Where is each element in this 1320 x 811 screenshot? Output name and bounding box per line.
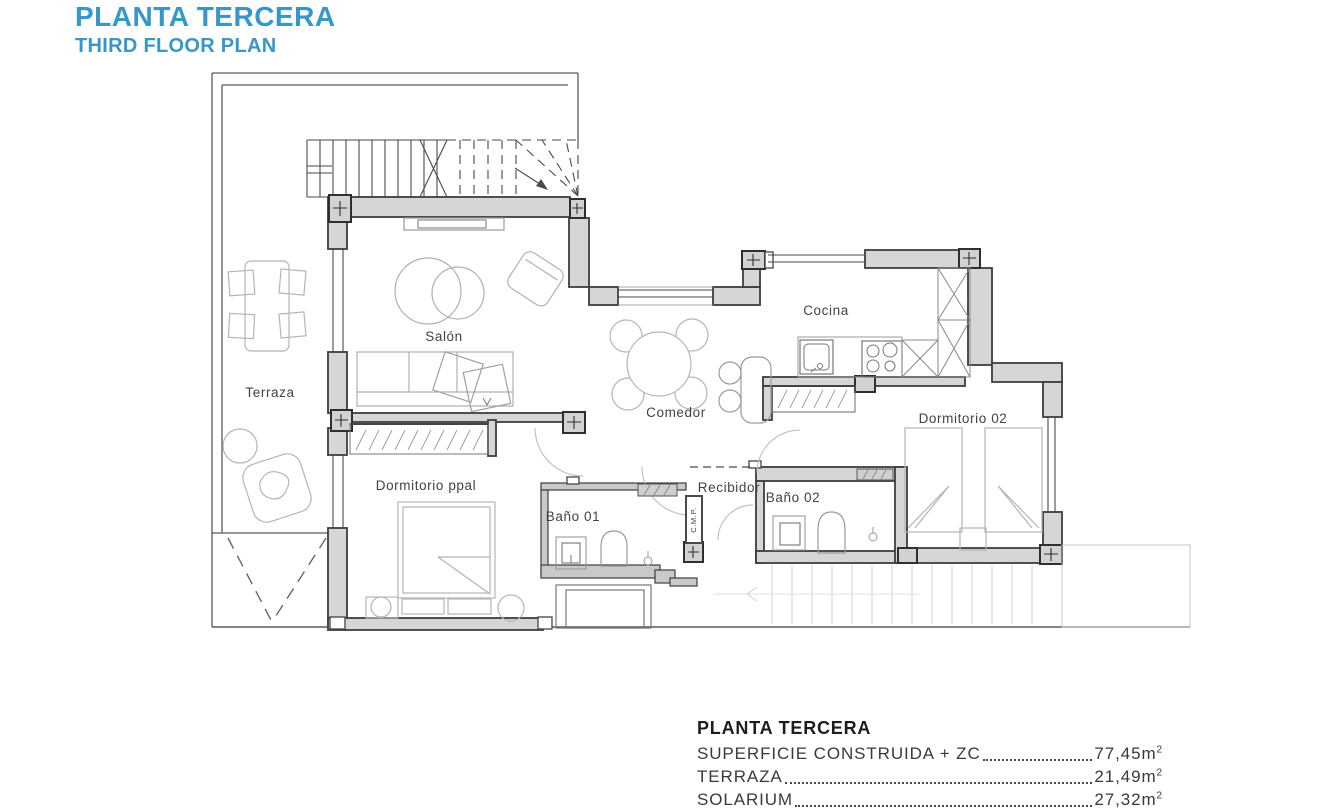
comedor-furniture [610, 319, 708, 410]
area-table-heading: PLANTA TERCERA [697, 718, 1163, 739]
area-row-sup: 2 [1157, 744, 1163, 755]
dotted-leader [795, 805, 1092, 807]
room-label-dormitorio-02: Dormitorio 02 [919, 411, 1008, 426]
room-label-cocina: Cocina [803, 303, 849, 318]
area-row-superficie: SUPERFICIE CONSTRUIDA + ZC 77,45m2 [697, 742, 1163, 765]
room-label-cmp: C.M.P. [689, 507, 698, 533]
area-row-value: 77,45m [1094, 744, 1156, 763]
room-label-bano-02: Baño 02 [766, 490, 821, 505]
area-row-label: TERRAZA [697, 765, 783, 788]
salon-furniture [357, 218, 566, 412]
wardrobe-hall [772, 386, 855, 412]
room-label-terraza: Terraza [245, 385, 294, 400]
area-row-label: SUPERFICIE CONSTRUIDA + ZC [697, 742, 981, 765]
wardrobe-salon [350, 424, 488, 454]
room-label-recibidor: Recibidor [698, 480, 760, 495]
area-table: PLANTA TERCERA SUPERFICIE CONSTRUIDA + Z… [697, 718, 1163, 811]
void-dashed-marker [228, 538, 326, 622]
dorm-02-furniture [905, 428, 1042, 550]
room-label-salon: Salón [425, 329, 463, 344]
dotted-leader [983, 759, 1093, 761]
dotted-leader [785, 782, 1093, 784]
solarium-outline-faint [1062, 545, 1190, 627]
area-row-value: 21,49m [1094, 767, 1156, 786]
staircase-upper [307, 140, 578, 197]
room-label-comedor: Comedor [646, 405, 706, 420]
staircase-lower-faint [713, 565, 1032, 624]
room-label-bano-01: Baño 01 [546, 509, 601, 524]
shower-below [556, 585, 651, 628]
floor-plan-drawing: Terraza Salón Cocina Comedor Dormitorio … [0, 0, 1320, 800]
area-row-terraza: TERRAZA 21,49m2 [697, 765, 1163, 788]
bath-01-fixtures [556, 484, 677, 569]
dorm-ppal-furniture [366, 502, 524, 621]
area-row-sup: 2 [1157, 767, 1163, 778]
room-label-dormitorio-ppal: Dormitorio ppal [376, 478, 477, 493]
